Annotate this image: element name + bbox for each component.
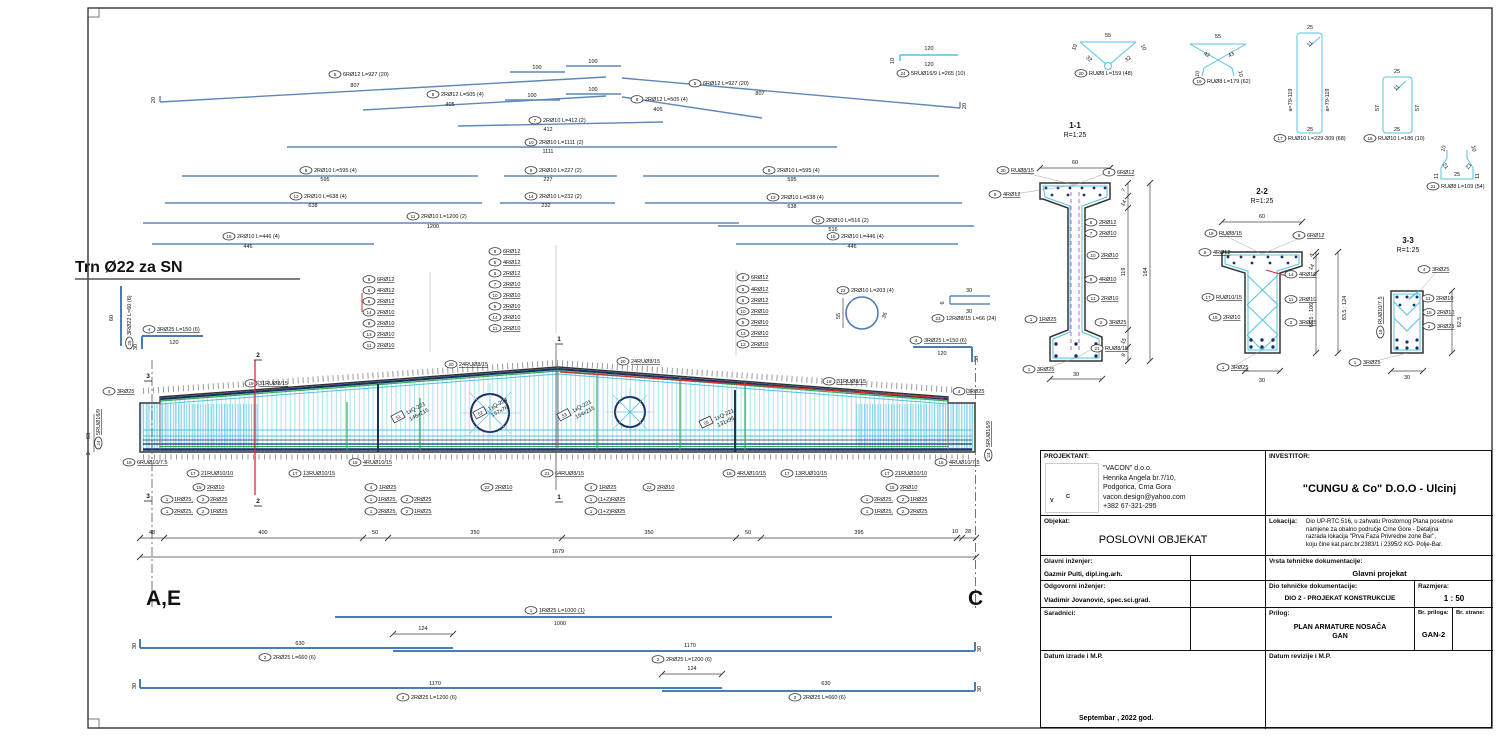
svg-text:R=1:25: R=1:25 — [1251, 198, 1274, 205]
svg-text:30: 30 — [132, 683, 138, 689]
svg-text:227: 227 — [543, 177, 552, 183]
svg-text:16: 16 — [126, 460, 132, 465]
drawing-sheet: 56RØ12 L=927 (20) 807 56RØ12 L=927 (20) … — [0, 0, 1500, 736]
svg-text:446: 446 — [847, 244, 856, 250]
svg-text:22: 22 — [484, 485, 490, 490]
svg-text:24: 24 — [96, 440, 101, 446]
svg-text:1: 1 — [590, 497, 593, 502]
svg-text:1: 1 — [1222, 365, 1225, 370]
svg-text:400: 400 — [258, 530, 267, 536]
svg-text:17: 17 — [784, 471, 790, 476]
svg-text:4RUØ10/15: 4RUØ10/15 — [363, 460, 392, 466]
svg-text:2RØ25 L=660 (6): 2RØ25 L=660 (6) — [273, 655, 316, 661]
glavni-value: Gazmir Pulti, dipl.ing.arh. — [1044, 571, 1122, 578]
rebar-stack-right: 86RØ12 54RØ12 62RØ12 102RØ10 92RØ10 132R… — [736, 270, 768, 355]
svg-text:9: 9 — [1121, 353, 1128, 359]
svg-text:807: 807 — [755, 91, 764, 97]
tb-br-priloga-label: Br. priloga: — [1418, 610, 1449, 616]
svg-text:15: 15 — [830, 234, 836, 239]
svg-text:6RØ12 L=927 (20): 6RØ12 L=927 (20) — [703, 81, 749, 87]
svg-text:595: 595 — [320, 177, 329, 183]
svg-text:14: 14 — [366, 310, 372, 315]
svg-text:25: 25 — [1307, 25, 1313, 31]
svg-text:3RØ25: 3RØ25 — [1037, 367, 1054, 373]
svg-text:11: 11 — [1393, 84, 1401, 92]
svg-text:2-2: 2-2 — [1256, 187, 1268, 196]
svg-text:11: 11 — [411, 214, 416, 219]
svg-text:10: 10 — [1139, 44, 1147, 52]
svg-text:5: 5 — [494, 260, 497, 265]
trn-title: Trn Ø22 za SN — [75, 259, 183, 276]
svg-text:6: 6 — [940, 301, 946, 304]
vacon-name: "VACON" d.o.o. — [1103, 464, 1186, 474]
svg-text:3RØ25 L=150 (6): 3RØ25 L=150 (6) — [924, 338, 967, 344]
tb-vrsta-label: Vrsta tehničke dokumentacije: — [1269, 558, 1363, 565]
svg-text:17: 17 — [1277, 136, 1283, 141]
vacon-city: Podgorica, Crna Gora — [1103, 483, 1186, 493]
svg-text:2: 2 — [406, 509, 409, 514]
svg-text:10: 10 — [740, 309, 746, 314]
svg-text:2RØ10: 2RØ10 — [1223, 315, 1240, 321]
svg-text:1: 1 — [557, 336, 561, 343]
svg-text:RUØ10/7.5: RUØ10/7.5 — [1378, 296, 1384, 324]
svg-text:10: 10 — [952, 529, 958, 535]
svg-text:124: 124 — [687, 666, 696, 672]
svg-text:164: 164 — [1143, 267, 1149, 276]
svg-text:5: 5 — [994, 192, 997, 197]
tb-datum-revizije-cell: Datum revizije i M.P. — [1266, 651, 1493, 729]
svg-text:60: 60 — [109, 315, 115, 321]
svg-text:50: 50 — [372, 530, 378, 536]
svg-text:10: 10 — [1469, 145, 1476, 152]
svg-text:2: 2 — [1290, 320, 1293, 325]
svg-text:30: 30 — [966, 309, 972, 315]
svg-text:16: 16 — [1367, 136, 1373, 141]
bar-schedule-labels: 56RØ12 L=927 (20) 807 56RØ12 L=927 (20) … — [151, 59, 968, 250]
svg-text:2RØ10: 2RØ10 — [1099, 231, 1116, 237]
svg-text:6RØ12 L=927 (20): 6RØ12 L=927 (20) — [343, 72, 389, 78]
svg-text:8: 8 — [432, 92, 435, 97]
tb-saradnici-cell: Saradnici: — [1041, 608, 1191, 651]
svg-text:19: 19 — [1208, 231, 1214, 236]
svg-text:20: 20 — [962, 103, 968, 109]
svg-text:20: 20 — [620, 359, 626, 364]
svg-text:13: 13 — [293, 194, 299, 199]
svg-text:20: 20 — [1078, 71, 1084, 76]
svg-text:30: 30 — [1259, 378, 1265, 384]
svg-text:1170: 1170 — [429, 681, 441, 687]
grid-label-left: A,E — [146, 587, 181, 610]
svg-text:2RØ10 L=1111 (2): 2RØ10 L=1111 (2) — [539, 140, 584, 146]
stirrup-detail-19: 55 42 43 10 10 19RUØ8 L=179 (62) — [1190, 34, 1251, 85]
svg-text:100: 100 — [588, 87, 597, 93]
tb-lokacija-label: Lokacija: — [1269, 518, 1297, 525]
svg-text:1: 1 — [866, 497, 869, 502]
svg-text:18: 18 — [352, 460, 358, 465]
svg-text:2RØ10 L=595 (4): 2RØ10 L=595 (4) — [777, 168, 820, 174]
svg-text:1: 1 — [1030, 317, 1033, 322]
projektant-address: "VACON" d.o.o. Henrika Angela br.7/10, P… — [1103, 464, 1186, 512]
svg-text:9: 9 — [768, 168, 771, 173]
svg-text:63: 63 — [86, 433, 92, 439]
svg-text:22: 22 — [840, 288, 846, 293]
svg-text:7: 7 — [1090, 231, 1093, 236]
svg-text:8: 8 — [742, 275, 745, 280]
svg-text:43: 43 — [1227, 51, 1235, 59]
svg-text:31RUØ8/15: 31RUØ8/15 — [837, 379, 866, 385]
svg-text:4RØ12: 4RØ12 — [377, 288, 394, 294]
tb-vrsta-cell: Vrsta tehničke dokumentacije: Glavni pro… — [1266, 556, 1493, 581]
svg-text:5: 5 — [368, 288, 371, 293]
br-priloga-value: GAN-2 — [1415, 630, 1452, 639]
svg-text:1RØ25,: 1RØ25, — [174, 497, 193, 503]
svg-text:1: 1 — [557, 494, 561, 501]
beam-opening-2 — [606, 388, 654, 436]
grid-label-right: C — [968, 587, 983, 610]
svg-text:2: 2 — [794, 695, 797, 700]
svg-text:11: 11 — [493, 326, 498, 331]
tb-projektant-cell: PROJEKTANT: V C "VACON" d.o.o. Henrika A… — [1041, 451, 1266, 516]
prilog-value-line1: PLAN ARMATURE NOSAČA — [1266, 624, 1414, 631]
svg-text:2RØ25 L=1200 (6): 2RØ25 L=1200 (6) — [411, 695, 457, 701]
svg-text:1RØ25: 1RØ25 — [210, 509, 227, 515]
svg-text:10: 10 — [528, 140, 534, 145]
svg-text:1170: 1170 — [684, 643, 696, 649]
svg-text:2: 2 — [406, 497, 409, 502]
svg-text:RUØ8 L=109 (54): RUØ8 L=109 (54) — [1441, 184, 1485, 190]
svg-text:12: 12 — [740, 342, 746, 347]
svg-text:36: 36 — [881, 312, 889, 320]
svg-text:30: 30 — [977, 686, 983, 692]
svg-text:350: 350 — [644, 530, 653, 536]
svg-text:16: 16 — [1378, 329, 1383, 335]
svg-text:2: 2 — [1100, 320, 1103, 325]
svg-text:6RØ12: 6RØ12 — [377, 277, 394, 283]
svg-text:15: 15 — [226, 234, 232, 239]
svg-text:57: 57 — [1375, 105, 1381, 111]
svg-text:12RØ8/15 L=66 (24): 12RØ8/15 L=66 (24) — [946, 316, 996, 322]
svg-text:2: 2 — [264, 655, 267, 660]
svg-text:11: 11 — [1306, 40, 1314, 48]
svg-text:23: 23 — [935, 316, 941, 321]
svg-text:3RØ25: 3RØ25 — [1432, 267, 1449, 273]
tb-br-strane-cell: Br. strane: — [1453, 608, 1493, 651]
svg-text:2RØ10 L=638 (4): 2RØ10 L=638 (4) — [781, 195, 824, 201]
tb-datum-izrade-label: Datum izrade i M.P. — [1044, 653, 1103, 660]
svg-text:2RØ10: 2RØ10 — [1299, 297, 1316, 303]
svg-text:6: 6 — [494, 271, 497, 276]
svg-text:5: 5 — [742, 287, 745, 292]
svg-text:630: 630 — [295, 641, 304, 647]
svg-text:2RØ10 L=1200 (2): 2RØ10 L=1200 (2) — [421, 214, 467, 220]
tb-odgovorni-cell: Odgovorni inženjer: Vladimir Jovanović, … — [1041, 581, 1191, 608]
svg-text:3RØ25: 3RØ25 — [1109, 320, 1126, 326]
svg-text:2RØ10: 2RØ10 — [503, 326, 520, 332]
svg-text:12: 12 — [815, 218, 821, 223]
svg-text:5RUØ16/9: 5RUØ16/9 — [96, 409, 102, 435]
svg-text:16: 16 — [938, 460, 944, 465]
tb-br-priloga-cell: Br. priloga: GAN-2 — [1415, 608, 1453, 651]
dio-value: DIO 2 - PROJEKAT KONSTRUKCIJE — [1266, 595, 1414, 602]
svg-text:2: 2 — [256, 498, 260, 505]
svg-text:RUØ8/15: RUØ8/15 — [1105, 346, 1128, 352]
svg-text:9: 9 — [305, 168, 308, 173]
stirrup-detail-17: 25 11 a=79-119 a=79-119 25 17RUØ10 L=229… — [1274, 25, 1346, 142]
svg-text:2RØ10 L=232 (2): 2RØ10 L=232 (2) — [539, 194, 582, 200]
bar-detail-22: 222RØ10 L=203 (4) 55 36 — [836, 287, 894, 329]
svg-text:5: 5 — [1204, 250, 1207, 255]
svg-text:55: 55 — [836, 313, 842, 319]
stirrup-detail-16: 25 11 57 57 25 16RUØ10 L=186 (10) — [1364, 69, 1425, 142]
svg-text:2RØ10: 2RØ10 — [1436, 296, 1453, 302]
svg-text:83.5 : 124: 83.5 : 124 — [1342, 296, 1348, 320]
svg-text:8: 8 — [494, 249, 497, 254]
stirrup-detail-20: 55 10 10 32 32 20RUØ8 L=159 (48) — [1071, 33, 1147, 77]
svg-text:10: 10 — [1236, 70, 1243, 77]
svg-text:2: 2 — [902, 497, 905, 502]
svg-text:4RØ12: 4RØ12 — [751, 287, 768, 293]
svg-text:2RØ10: 2RØ10 — [377, 310, 394, 316]
rebar-stack-center: 86RØ12 54RØ12 62RØ12 72RØ10 102RØ10 92RØ… — [489, 245, 556, 333]
svg-text:2RØ25,: 2RØ25, — [174, 509, 193, 515]
stirrup-detail-24: 120 10 120 245RUØ16/9 L=265 (10) — [890, 46, 965, 77]
svg-text:595: 595 — [787, 177, 796, 183]
svg-text:4: 4 — [108, 389, 111, 394]
svg-text:1RØ25,: 1RØ25, — [874, 509, 893, 515]
svg-text:120: 120 — [924, 62, 933, 68]
svg-text:50: 50 — [745, 530, 751, 536]
svg-text:412: 412 — [543, 127, 552, 133]
svg-text:13: 13 — [770, 195, 776, 200]
svg-text:18: 18 — [726, 471, 732, 476]
tb-razmjera-cell: Razmjera: 1 : 50 — [1415, 581, 1493, 608]
svg-text:13RUØ10/15: 13RUØ10/15 — [795, 471, 827, 477]
svg-text:405: 405 — [445, 102, 454, 108]
tb-glavni-cell: Glavni inženjer: Gazmir Pulti, dipl.ing.… — [1041, 556, 1191, 581]
tb-glavni-label: Glavni inženjer: — [1044, 558, 1092, 565]
svg-text:2RØ10: 2RØ10 — [377, 321, 394, 327]
svg-text:30: 30 — [1404, 375, 1410, 381]
svg-text:2RØ12: 2RØ12 — [1099, 220, 1116, 226]
svg-text:10: 10 — [492, 293, 498, 298]
tb-empty-cell — [1191, 608, 1266, 651]
prilog-value-line2: GAN — [1266, 633, 1414, 640]
svg-text:21: 21 — [544, 471, 550, 476]
tb-investitor-cell: INVESTITOR: "CUNGU & Co" D.O.O - Ulcinj — [1266, 451, 1493, 516]
trn-detail: Trn Ø22 za SN 60 253RØ22 L=60 (6) 43RØ25… — [75, 259, 300, 350]
svg-text:232: 232 — [541, 203, 550, 209]
svg-text:124: 124 — [418, 626, 427, 632]
svg-text:6RØ12: 6RØ12 — [1307, 233, 1324, 239]
svg-text:2RØ25,: 2RØ25, — [378, 509, 397, 515]
svg-text:2RØ25,: 2RØ25, — [874, 497, 893, 503]
svg-text:10: 10 — [890, 58, 896, 64]
svg-text:6RØ12: 6RØ12 — [1117, 170, 1134, 176]
svg-text:17: 17 — [190, 471, 196, 476]
bar-detail-4r: 43RØ25 L=150 (6) 120 30 — [910, 337, 980, 362]
svg-text:17: 17 — [292, 471, 298, 476]
svg-text:48: 48 — [149, 530, 155, 536]
svg-text:14: 14 — [1308, 263, 1316, 271]
tb-objekat-label: Objekat: — [1044, 518, 1070, 525]
svg-text:2RØ25: 2RØ25 — [414, 497, 431, 503]
svg-text:2RØ10 L=412 (2): 2RØ10 L=412 (2) — [543, 118, 586, 124]
svg-text:11: 11 — [1475, 173, 1481, 179]
svg-text:405: 405 — [653, 107, 662, 113]
svg-text:2RØ10: 2RØ10 — [751, 309, 768, 315]
tb-objekat-cell: Objekat: POSLOVNI OBJEKAT — [1041, 516, 1266, 556]
svg-text:5RUØ16/9: 5RUØ16/9 — [986, 421, 992, 447]
section-3-3: 3-3 R=1:25 43RØ25 112RØ10 152RØ10 23RØ25… — [1349, 236, 1463, 381]
svg-text:1: 1 — [590, 509, 593, 514]
svg-text:1RØ25: 1RØ25 — [414, 509, 431, 515]
svg-text:R=1:25: R=1:25 — [1397, 247, 1420, 254]
svg-text:RUØ8 L=159 (48): RUØ8 L=159 (48) — [1089, 71, 1133, 77]
svg-text:8: 8 — [636, 97, 639, 102]
tb-dio-label: Dio tehničke dokumentacije: — [1269, 583, 1357, 590]
svg-text:RUØ8/15: RUØ8/15 — [1011, 168, 1034, 174]
svg-text:6: 6 — [1090, 220, 1093, 225]
lokacija-line: razrada lokacija "Prva Faza Privredne zo… — [1306, 534, 1453, 542]
svg-text:22: 22 — [646, 485, 652, 490]
svg-text:5: 5 — [334, 72, 337, 77]
svg-text:4RØ12: 4RØ12 — [1213, 250, 1230, 256]
lokacija-line: namjene za obalno područje Crne Gore - D… — [1306, 527, 1453, 535]
svg-text:1: 1 — [1354, 360, 1357, 365]
svg-text:32: 32 — [1084, 55, 1093, 64]
svg-text:17: 17 — [884, 471, 890, 476]
svg-text:9: 9 — [494, 304, 497, 309]
svg-text:120: 120 — [924, 46, 933, 52]
section-2-2: 2-2 R=1:25 60 19RUØ8/15 86RØ12 54RØ12 14… — [1199, 187, 1348, 384]
svg-text:1: 1 — [1028, 367, 1031, 372]
svg-text:2RØ10: 2RØ10 — [503, 293, 520, 299]
svg-text:10: 10 — [1195, 70, 1202, 77]
svg-text:120: 120 — [169, 340, 178, 346]
svg-text:RUØ10/15: RUØ10/15 — [1216, 295, 1242, 301]
datum-value: Septembar , 2022 god. — [1079, 715, 1153, 722]
svg-text:2RØ10: 2RØ10 — [495, 485, 512, 491]
svg-text:2RØ12 L=505 (4): 2RØ12 L=505 (4) — [441, 92, 484, 98]
svg-text:1679: 1679 — [552, 549, 564, 555]
svg-text:15: 15 — [1426, 310, 1432, 315]
svg-text:19: 19 — [248, 381, 254, 386]
svg-text:11: 11 — [367, 343, 372, 348]
svg-text:57: 57 — [1415, 105, 1421, 111]
svg-text:a=79-119: a=79-119 — [1325, 89, 1331, 112]
svg-text:1: 1 — [370, 509, 373, 514]
svg-text:10: 10 — [1071, 44, 1079, 52]
svg-text:1RØ25: 1RØ25 — [910, 497, 927, 503]
svg-text:516: 516 — [828, 227, 837, 233]
tb-prilog-cell: Prilog: PLAN ARMATURE NOSAČA GAN — [1266, 608, 1415, 651]
svg-text:30: 30 — [966, 288, 972, 294]
svg-text:RUØ10 L=229-309 (68): RUØ10 L=229-309 (68) — [1288, 136, 1346, 142]
svg-text:4: 4 — [148, 327, 151, 332]
svg-text:2RØ12: 2RØ12 — [751, 298, 768, 304]
stirrup-detail-21: 10 10 21 21 11 11 25 21RUØ8 L=109 (54) — [1427, 145, 1485, 190]
tb-datum-izrade-cell: Datum izrade i M.P. Septembar , 2022 god… — [1041, 651, 1266, 729]
svg-text:24RUØ8/15: 24RUØ8/15 — [631, 359, 660, 365]
svg-text:17: 17 — [1205, 295, 1211, 300]
svg-text:1: 1 — [370, 497, 373, 502]
svg-text:(1+2)RØ25: (1+2)RØ25 — [598, 509, 625, 515]
svg-text:15: 15 — [889, 485, 895, 490]
svg-text:19: 19 — [1196, 79, 1202, 84]
svg-text:20: 20 — [151, 97, 157, 103]
svg-text:20: 20 — [448, 362, 454, 367]
svg-text:630: 630 — [821, 681, 830, 687]
svg-text:2RØ10 L=203 (4): 2RØ10 L=203 (4) — [851, 288, 894, 294]
lokacija-line: Dio UP-RTC 516, u zahvatu Prostornog Pla… — [1306, 519, 1453, 527]
svg-text:2RØ10: 2RØ10 — [207, 485, 224, 491]
svg-text:21: 21 — [1465, 162, 1473, 170]
svg-text:8: 8 — [1108, 170, 1111, 175]
svg-text:60: 60 — [1072, 160, 1078, 166]
svg-text:2RØ10: 2RØ10 — [1101, 253, 1118, 259]
tb-lokacija-cell: Lokacija: Dio UP-RTC 516, u zahvatu Pros… — [1266, 516, 1493, 556]
razmjera-value: 1 : 50 — [1415, 594, 1493, 603]
svg-text:4RØ12: 4RØ12 — [1003, 192, 1020, 198]
section-1-1: 1-1 R=1:25 60 20RUØ8/15 54RØ12 86RØ12 62… — [989, 121, 1153, 382]
bar-detail-23: 30 30 6 2312RØ8/15 L=66 (24) — [932, 288, 996, 322]
svg-text:1RØ25: 1RØ25 — [599, 485, 616, 491]
bottom-bar-details: 11RØ25 L=1000 (1) 1000 124 630 22RØ25 L=… — [132, 607, 983, 701]
svg-text:6RØ12: 6RØ12 — [751, 275, 768, 281]
svg-text:28: 28 — [965, 529, 971, 535]
svg-text:1: 1 — [866, 509, 869, 514]
svg-text:2RØ10 L=638 (4): 2RØ10 L=638 (4) — [304, 194, 347, 200]
svg-text:3-3: 3-3 — [1402, 236, 1414, 245]
svg-text:2RØ12 L=505 (4): 2RØ12 L=505 (4) — [645, 97, 688, 103]
svg-text:15: 15 — [196, 485, 202, 490]
svg-text:7: 7 — [534, 118, 537, 123]
svg-text:32: 32 — [1124, 55, 1133, 64]
objekat-value: POSLOVNI OBJEKAT — [1041, 534, 1265, 546]
svg-text:21RUØ10/10: 21RUØ10/10 — [895, 471, 927, 477]
logo-letter-c: C — [1066, 494, 1070, 500]
svg-text:2RØ10 L=595 (4): 2RØ10 L=595 (4) — [314, 168, 357, 174]
tb-razmjera-label: Razmjera: — [1418, 583, 1449, 590]
svg-text:30: 30 — [133, 344, 139, 350]
svg-text:2RØ25: 2RØ25 — [210, 497, 227, 503]
svg-text:2RØ12: 2RØ12 — [377, 299, 394, 305]
svg-text:RUØ8/15: RUØ8/15 — [1219, 231, 1242, 237]
svg-text:10: 10 — [1090, 253, 1096, 258]
svg-text:25: 25 — [1394, 69, 1400, 75]
tb-dio-cell: Dio tehničke dokumentacije: DIO 2 - PROJ… — [1266, 581, 1415, 608]
svg-text:1RØ25: 1RØ25 — [379, 485, 396, 491]
lokacija-text: Dio UP-RTC 516, u zahvatu Prostornog Pla… — [1306, 519, 1453, 549]
svg-text:2: 2 — [202, 509, 205, 514]
svg-text:21: 21 — [1441, 162, 1449, 170]
svg-text:7: 7 — [1121, 188, 1128, 194]
svg-text:9: 9 — [530, 168, 533, 173]
svg-text:42: 42 — [1202, 51, 1210, 59]
svg-text:3: 3 — [86, 452, 92, 455]
svg-text:4: 4 — [590, 485, 593, 490]
svg-text:446: 446 — [243, 244, 252, 250]
svg-text:RUØ8 L=179 (62): RUØ8 L=179 (62) — [1207, 79, 1251, 85]
title-block: PROJEKTANT: V C "VACON" d.o.o. Henrika A… — [1040, 450, 1492, 728]
svg-text:6: 6 — [742, 298, 745, 303]
vacon-email: vacon.design@yahoo.com — [1103, 493, 1186, 503]
svg-text:3RØ22 L=60 (6): 3RØ22 L=60 (6) — [127, 295, 133, 335]
svg-text:9: 9 — [742, 320, 745, 325]
svg-text:1-1: 1-1 — [1069, 121, 1081, 130]
svg-text:4RUØ10/15: 4RUØ10/15 — [737, 471, 766, 477]
svg-text:31RUØ8/15: 31RUØ8/15 — [259, 381, 288, 387]
